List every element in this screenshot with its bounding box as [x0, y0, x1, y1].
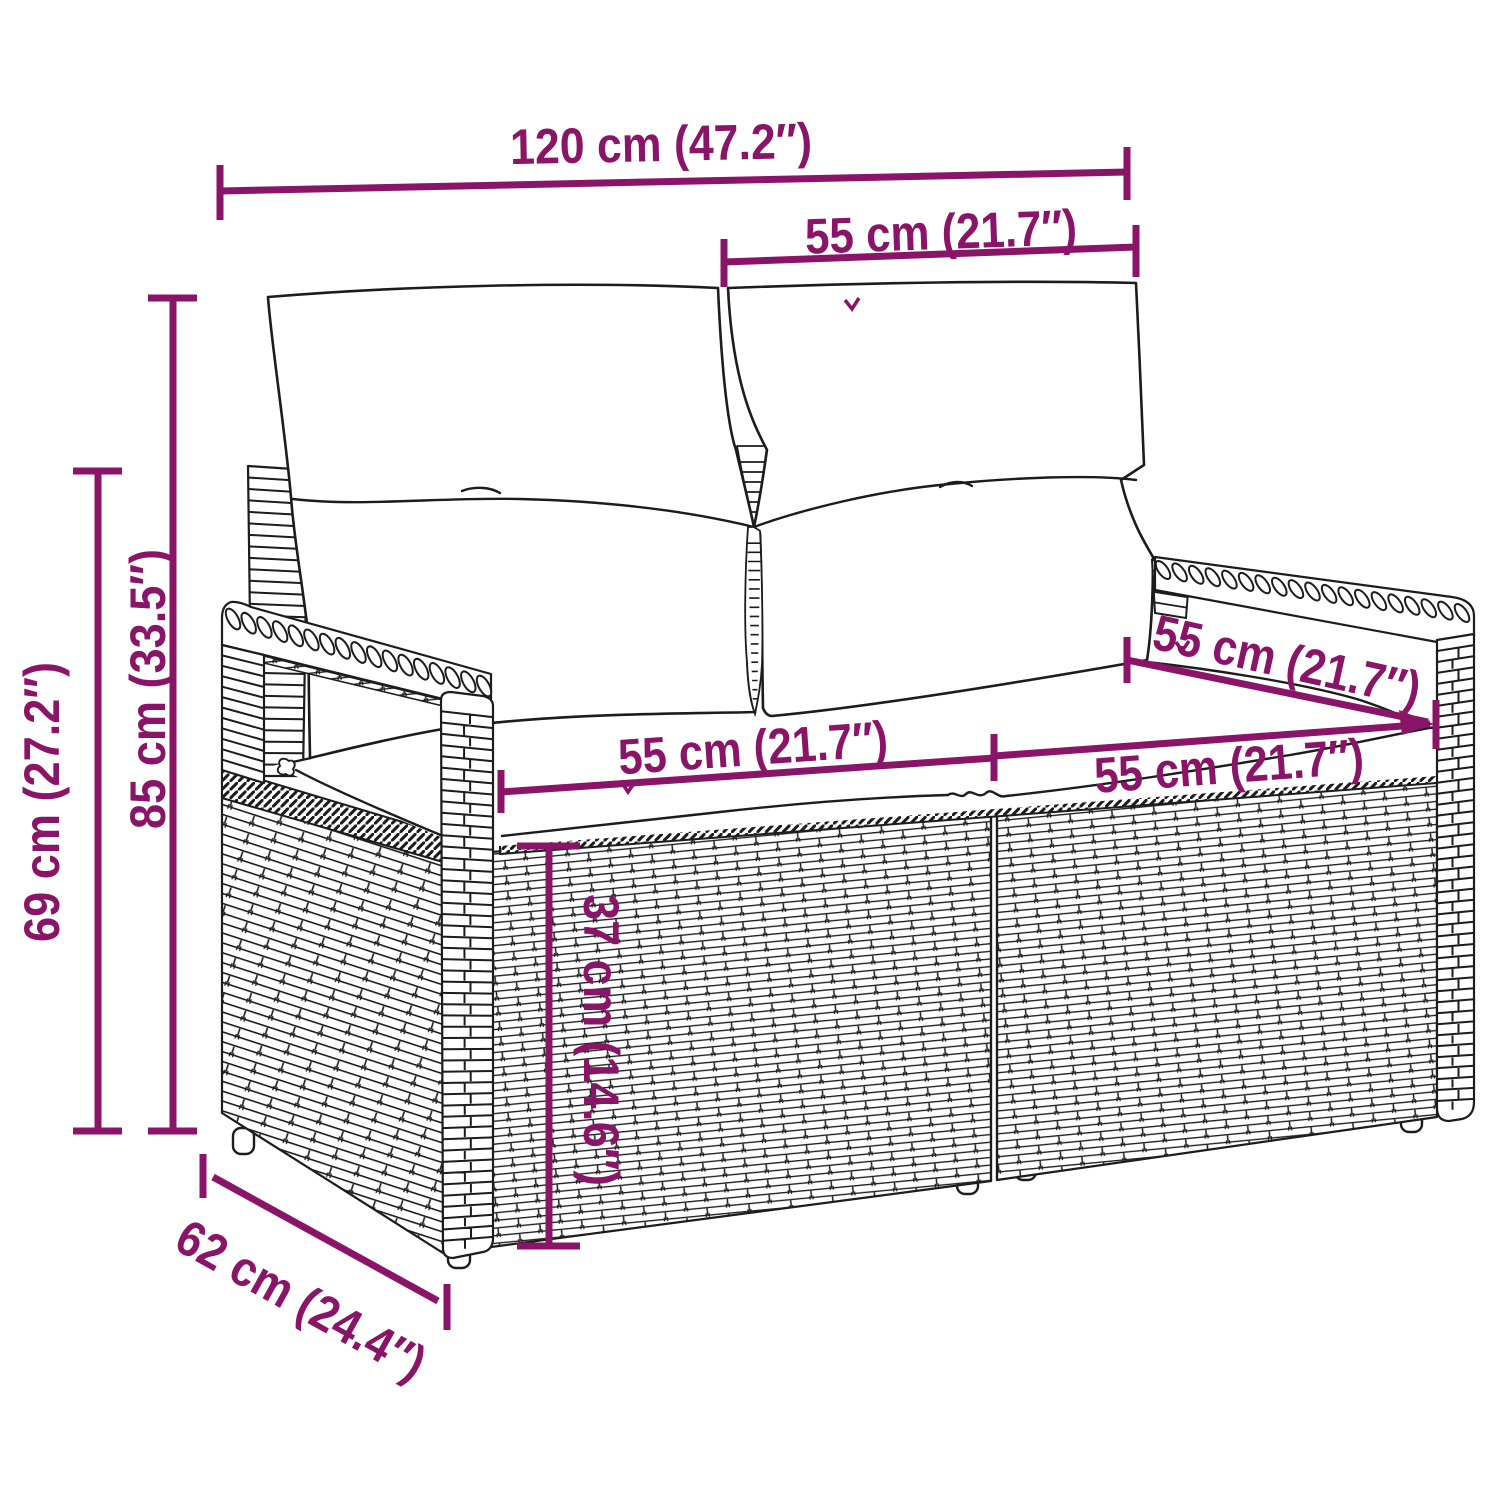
svg-text:69 cm (27.2″): 69 cm (27.2″) [14, 662, 70, 942]
svg-text:120 cm (47.2″): 120 cm (47.2″) [509, 113, 812, 175]
svg-text:37 cm (14.6″): 37 cm (14.6″) [573, 894, 629, 1186]
svg-text:55 cm (21.7″): 55 cm (21.7″) [804, 199, 1078, 264]
svg-text:85 cm (33.5″): 85 cm (33.5″) [120, 549, 176, 829]
